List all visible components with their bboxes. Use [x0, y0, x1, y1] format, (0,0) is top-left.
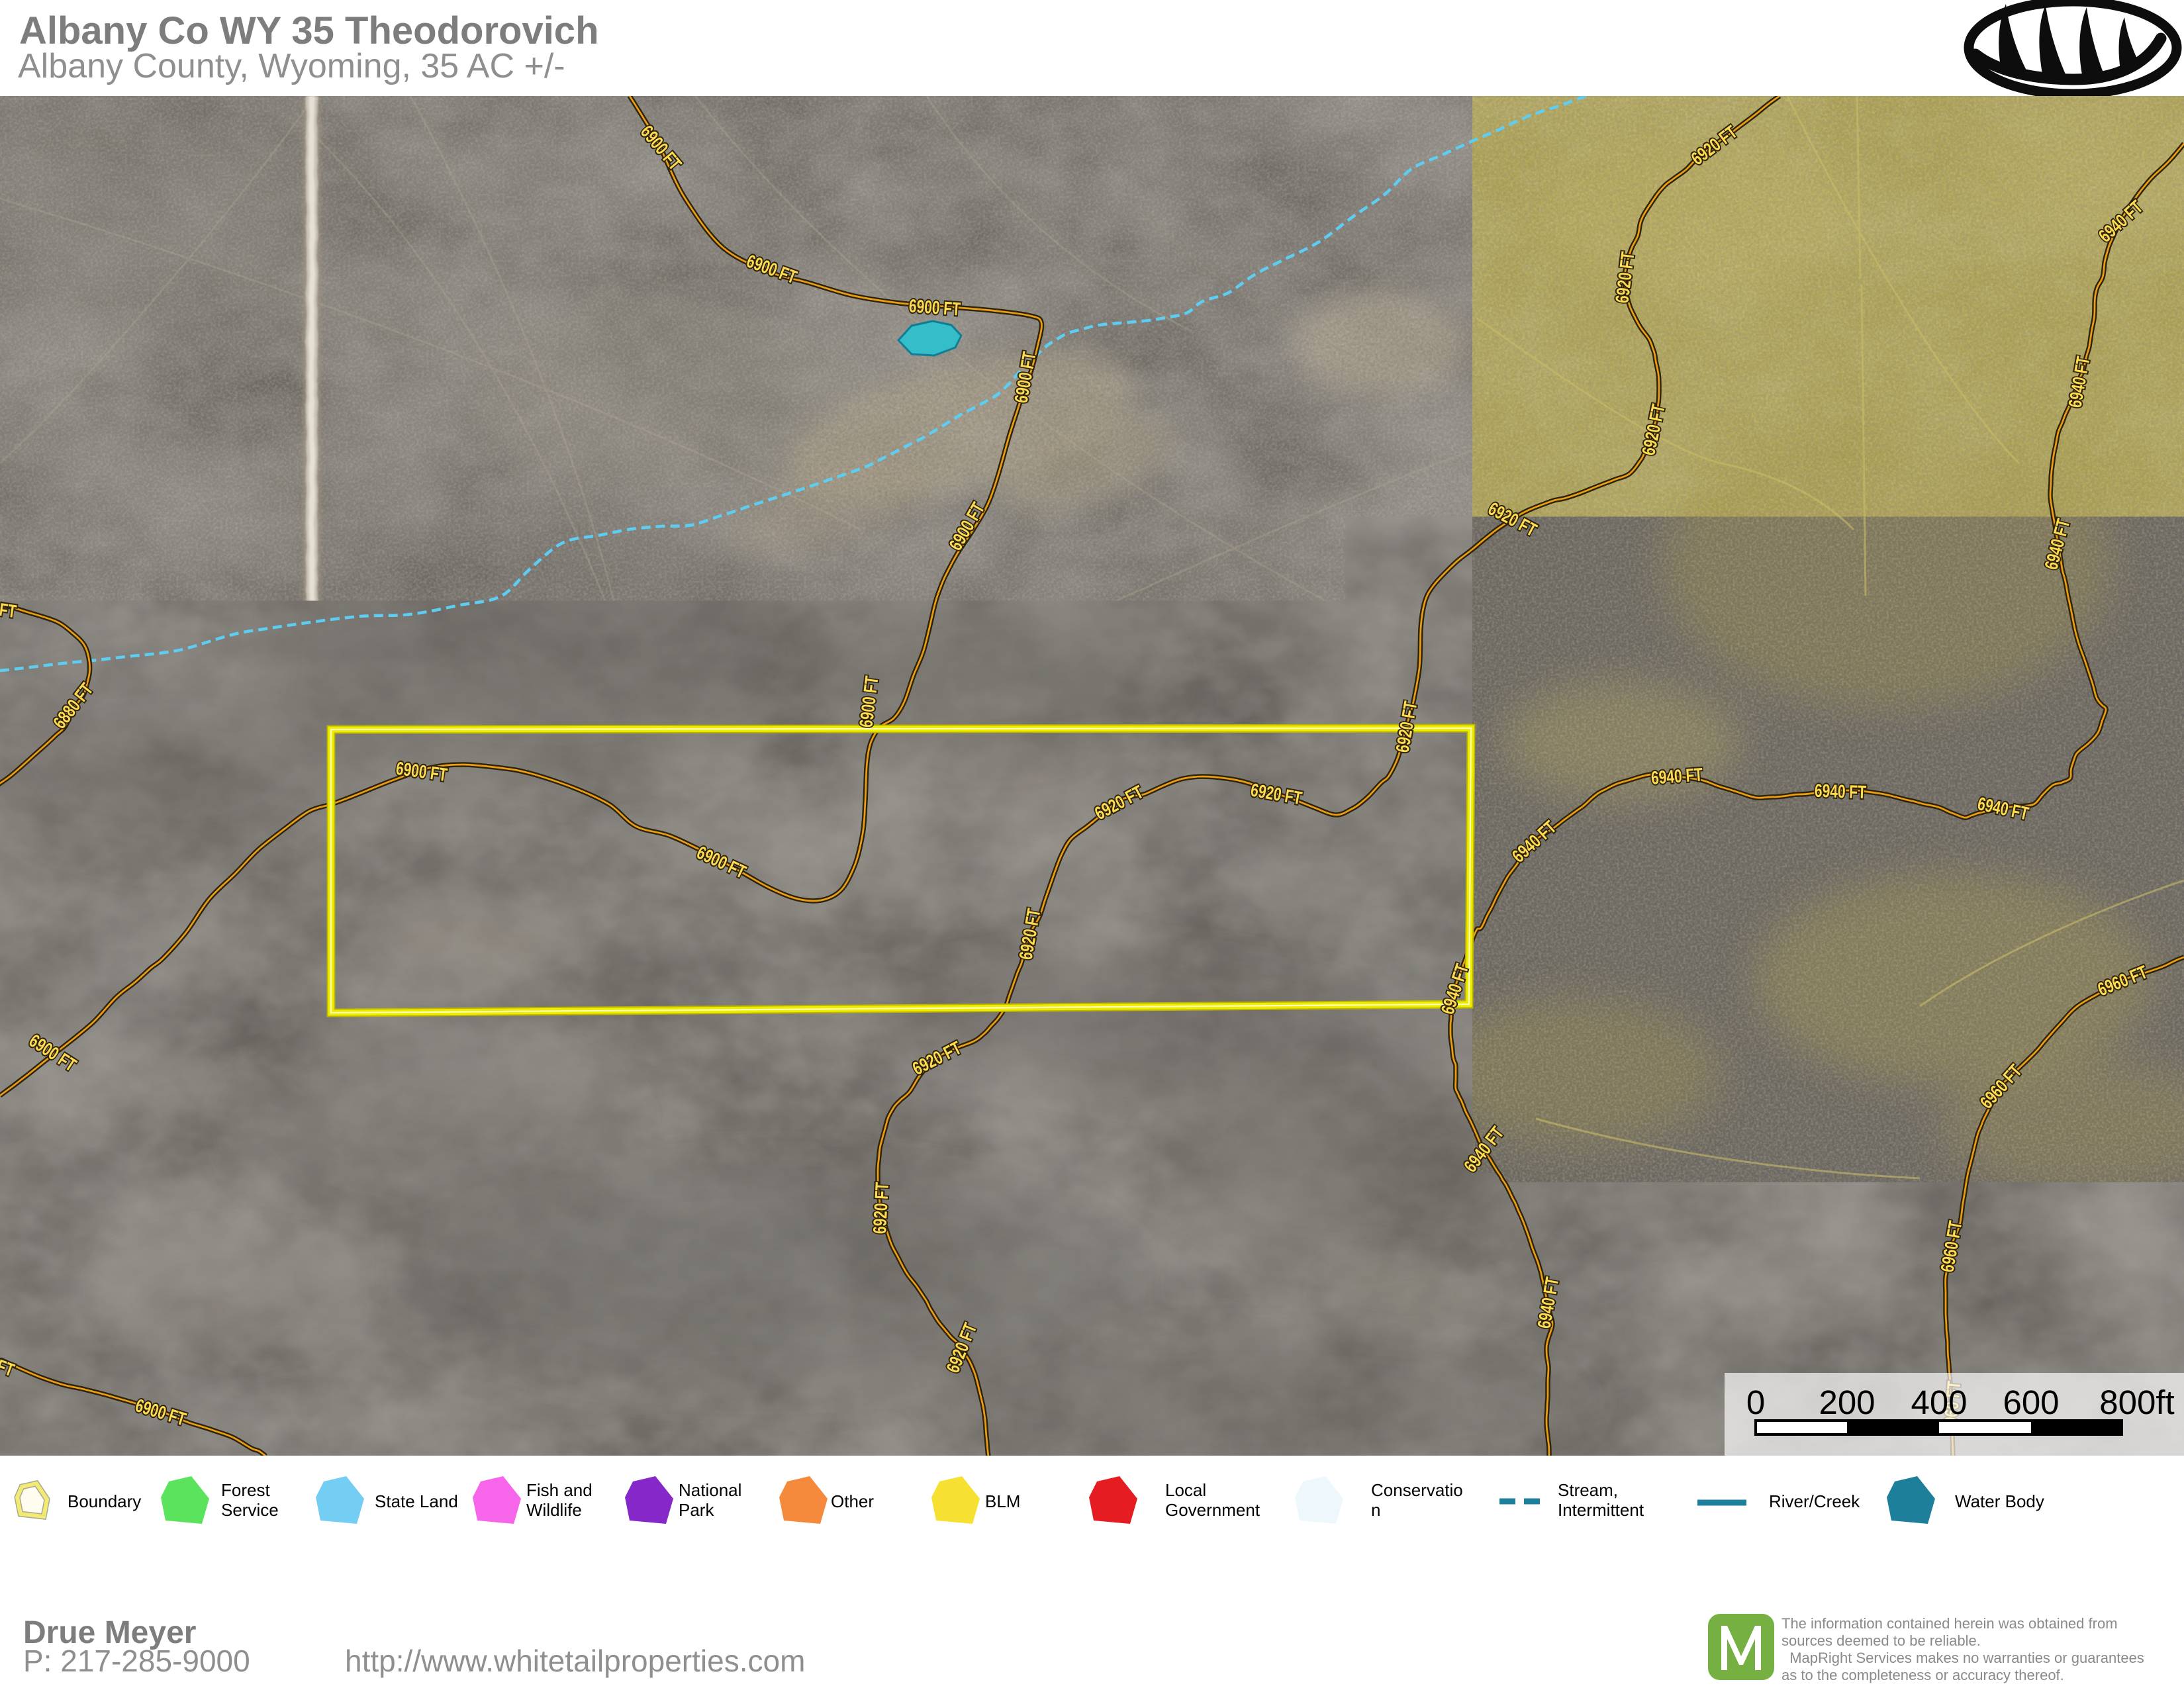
svg-text:State Land: State Land: [375, 1491, 458, 1511]
svg-text:River/Creek: River/Creek: [1769, 1491, 1860, 1511]
svg-text:6940 FT: 6940 FT: [1650, 764, 1703, 788]
svg-text:Water Body: Water Body: [1955, 1491, 2044, 1511]
svg-text:6920 FT: 6920 FT: [869, 1182, 892, 1235]
svg-text:BLM: BLM: [985, 1491, 1020, 1511]
svg-text:200: 200: [1819, 1383, 1875, 1421]
svg-text:n: n: [1371, 1500, 1380, 1520]
svg-text:400: 400: [1911, 1383, 1967, 1421]
svg-text:0: 0: [1746, 1383, 1765, 1421]
svg-text:Fish and: Fish and: [526, 1480, 593, 1500]
svg-text:6940 FT: 6940 FT: [1814, 780, 1866, 803]
svg-text:Wildlife: Wildlife: [526, 1500, 582, 1520]
svg-text:Park: Park: [679, 1500, 714, 1520]
svg-text:600: 600: [2003, 1383, 2059, 1421]
svg-text:Conservatio: Conservatio: [1371, 1480, 1463, 1500]
svg-text:Local: Local: [1165, 1480, 1206, 1500]
svg-text:National: National: [679, 1480, 741, 1500]
svg-text:Intermittent: Intermittent: [1558, 1500, 1644, 1520]
svg-text:Service: Service: [221, 1500, 279, 1520]
svg-text:Boundary: Boundary: [68, 1491, 141, 1511]
svg-text:Forest: Forest: [221, 1480, 270, 1500]
svg-text:Stream,: Stream,: [1558, 1480, 1618, 1500]
svg-text:Other: Other: [831, 1491, 874, 1511]
svg-text:800ft: 800ft: [2099, 1383, 2174, 1421]
svg-text:Government: Government: [1165, 1500, 1260, 1520]
svg-text:6900 FT: 6900 FT: [908, 295, 961, 319]
